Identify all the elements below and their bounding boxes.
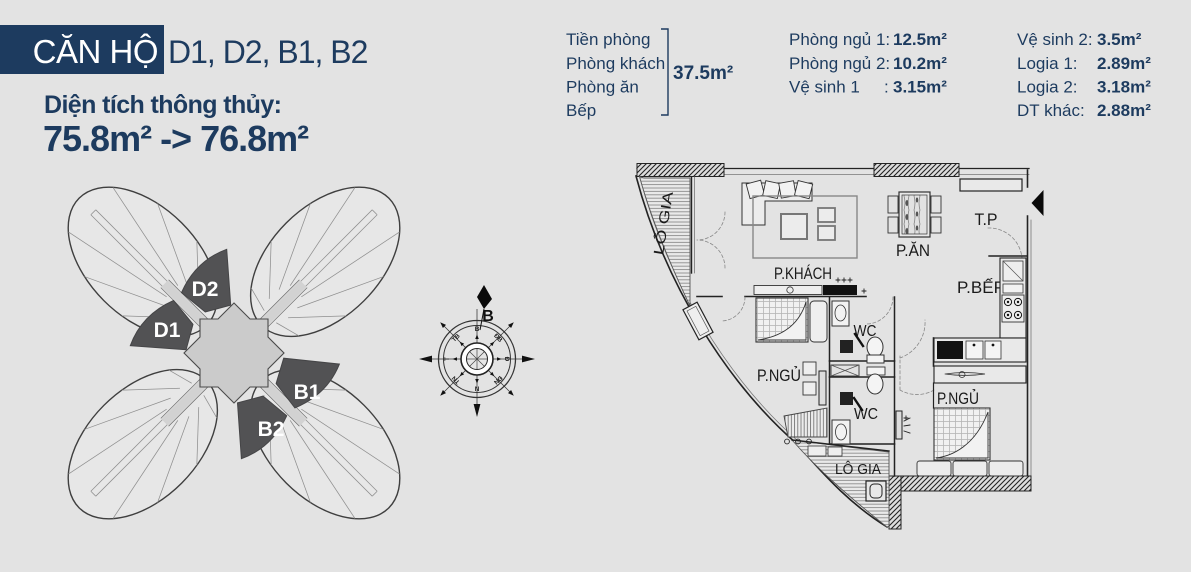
svg-text:D1: D1	[154, 319, 181, 342]
svg-text:Phòng ăn: Phòng ăn	[566, 78, 639, 97]
svg-text:3.15m²: 3.15m²	[893, 78, 947, 97]
svg-text:Vệ sinh 1: Vệ sinh 1	[789, 78, 860, 97]
svg-text:2.88m²: 2.88m²	[1097, 101, 1151, 120]
svg-text:DT khác:: DT khác:	[1017, 101, 1085, 120]
svg-text:3.18m²: 3.18m²	[1097, 78, 1151, 97]
svg-text:Tiền phòng: Tiền phòng	[566, 30, 650, 49]
svg-text:Phòng ngủ 1:: Phòng ngủ 1:	[789, 30, 890, 49]
svg-text:T.P: T.P	[975, 211, 998, 229]
svg-text:P.KHÁCH: P.KHÁCH	[774, 264, 832, 283]
svg-text:P.NGỦ: P.NGỦ	[757, 366, 801, 385]
svg-text:B1: B1	[294, 381, 321, 404]
svg-text:2.89m²: 2.89m²	[1097, 54, 1151, 73]
svg-text:12.5m²: 12.5m²	[893, 30, 947, 49]
svg-text:B2: B2	[258, 418, 285, 441]
svg-text:Phòng khách: Phòng khách	[566, 54, 665, 73]
svg-text:Đ: Đ	[503, 357, 510, 362]
svg-text:75.8m² -> 76.8m²: 75.8m² -> 76.8m²	[43, 118, 309, 159]
svg-text:Phòng ngủ 2:: Phòng ngủ 2:	[789, 54, 890, 73]
svg-text:Logia 2:: Logia 2:	[1017, 78, 1078, 97]
svg-text:CĂN HỘ: CĂN HỘ	[33, 33, 158, 70]
svg-text:WC: WC	[854, 406, 878, 423]
svg-text:N: N	[475, 386, 480, 393]
svg-text:P.NGỦ: P.NGỦ	[937, 389, 979, 408]
svg-text:Diện tích thông thủy:: Diện tích thông thủy:	[44, 91, 281, 119]
svg-text:LÔ GIA: LÔ GIA	[835, 461, 881, 478]
svg-text:10.2m²: 10.2m²	[893, 54, 947, 73]
svg-text:D1, D2, B1, B2: D1, D2, B1, B2	[168, 34, 368, 70]
svg-text:37.5m²: 37.5m²	[673, 63, 733, 84]
svg-text:B: B	[482, 308, 494, 325]
svg-text:Logia 1:: Logia 1:	[1017, 54, 1078, 73]
svg-text:Vệ sinh 2:: Vệ sinh 2:	[1017, 30, 1093, 49]
svg-text:T: T	[444, 357, 451, 361]
svg-text::: :	[884, 78, 889, 97]
svg-text:B: B	[475, 326, 480, 333]
svg-text:3.5m²: 3.5m²	[1097, 30, 1142, 49]
svg-text:D2: D2	[192, 278, 219, 301]
svg-text:Bếp: Bếp	[566, 101, 596, 120]
svg-text:P.ĂN: P.ĂN	[896, 241, 930, 260]
svg-text:P.BẾP: P.BẾP	[957, 278, 1005, 297]
